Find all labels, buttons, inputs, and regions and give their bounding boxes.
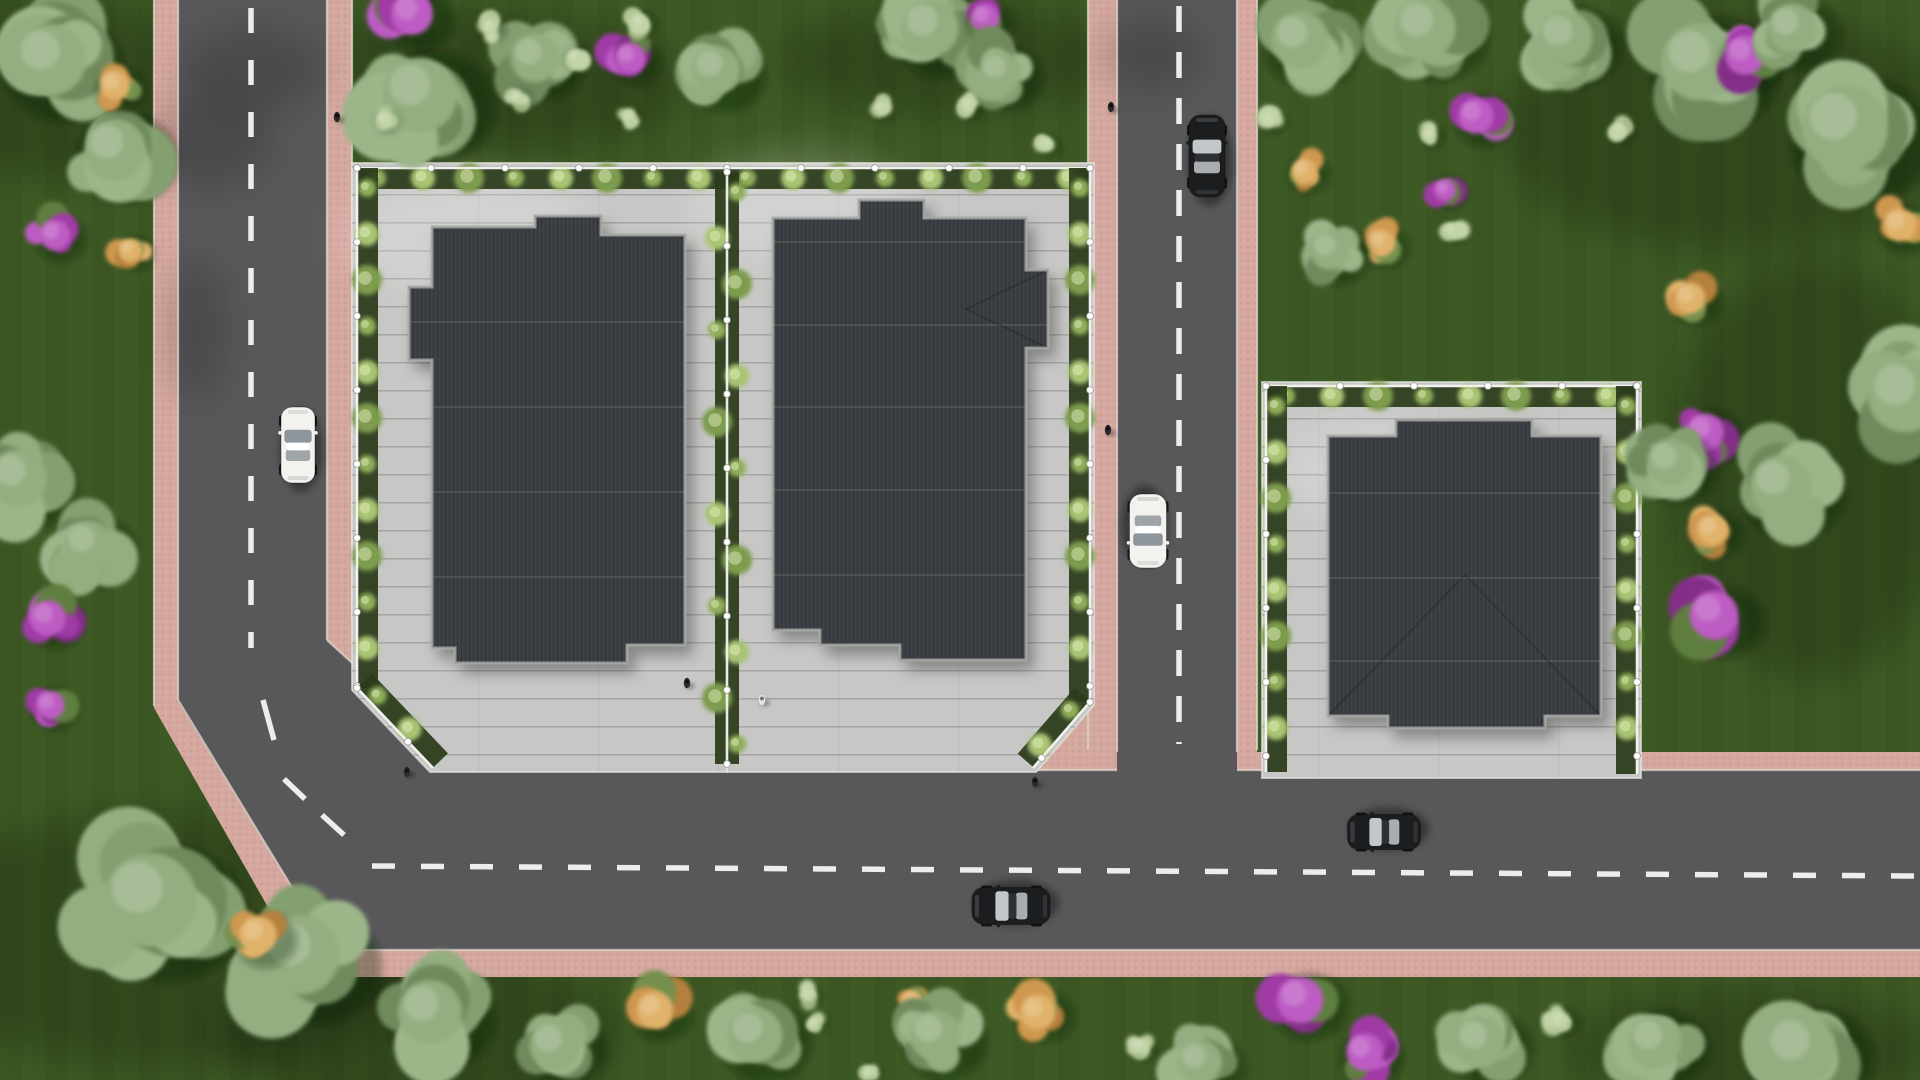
fence-post xyxy=(1263,383,1270,390)
fence-post xyxy=(1263,457,1270,464)
white-car-left-road xyxy=(278,407,322,492)
fence-post xyxy=(650,165,657,172)
site-plan-svg xyxy=(0,0,1920,1080)
tree-shadow-on-road xyxy=(166,258,226,402)
fence-post xyxy=(1263,531,1270,538)
fence-post xyxy=(724,687,731,694)
fence-post xyxy=(1634,531,1641,538)
plot2-right-fence xyxy=(1065,165,1095,702)
black-car-horizontal-road-2 xyxy=(1348,807,1430,852)
fence-post xyxy=(724,169,731,176)
fence-post xyxy=(1263,753,1270,760)
plot3-left-fence xyxy=(1261,383,1291,772)
fence-post xyxy=(1087,165,1094,172)
fence-post xyxy=(1263,605,1270,612)
fence-post xyxy=(946,165,953,172)
aerial-site-render xyxy=(0,0,1920,1080)
tree-shadow-on-road xyxy=(1098,19,1202,91)
fence-post xyxy=(1087,535,1094,542)
fence-post xyxy=(354,387,361,394)
fence-post xyxy=(724,613,731,620)
fence-post xyxy=(724,465,731,472)
fence-post xyxy=(354,535,361,542)
fence-post xyxy=(1087,239,1094,246)
bush-bush xyxy=(565,47,593,71)
fence-post xyxy=(1411,383,1418,390)
plot1-left-fence xyxy=(352,165,382,690)
fence-post xyxy=(354,239,361,246)
fence-post xyxy=(724,761,731,768)
fence-post xyxy=(1087,699,1094,706)
fence-post xyxy=(1020,165,1027,172)
fence-post xyxy=(872,165,879,172)
fence-post xyxy=(724,317,731,324)
fence-post xyxy=(724,243,731,250)
fence-post xyxy=(1087,313,1094,320)
fence-post xyxy=(1559,383,1566,390)
black-car-horizontal-road-1 xyxy=(972,880,1059,927)
fence-post xyxy=(354,609,361,616)
fence-post xyxy=(576,165,583,172)
fence-post xyxy=(354,165,361,172)
white-car-vertical-road xyxy=(1122,485,1169,568)
black-car-vertical-road-top xyxy=(1186,115,1232,206)
fence-post xyxy=(1087,387,1094,394)
fence-post xyxy=(502,165,509,172)
fence-post xyxy=(354,461,361,468)
fence-post xyxy=(1087,683,1094,690)
fence-post xyxy=(428,165,435,172)
fence-post xyxy=(1634,753,1641,760)
fence-post xyxy=(1485,383,1492,390)
fence-post xyxy=(405,738,412,745)
plot2-top-fence xyxy=(724,163,1090,193)
fence-post xyxy=(1263,679,1270,686)
fence-post xyxy=(724,539,731,546)
fence-post xyxy=(1038,755,1045,762)
fence-post xyxy=(1337,383,1344,390)
fence-post xyxy=(798,165,805,172)
fence-post xyxy=(1634,383,1641,390)
fence-post xyxy=(354,313,361,320)
fence-post xyxy=(1634,605,1641,612)
tree-canopy xyxy=(1753,0,1842,70)
fence-post xyxy=(1087,609,1094,616)
fence-post xyxy=(724,391,731,398)
fence-post xyxy=(1634,679,1641,686)
fence-post xyxy=(1087,461,1094,468)
plot3-top-fence xyxy=(1263,381,1640,411)
fence-post xyxy=(354,685,361,692)
